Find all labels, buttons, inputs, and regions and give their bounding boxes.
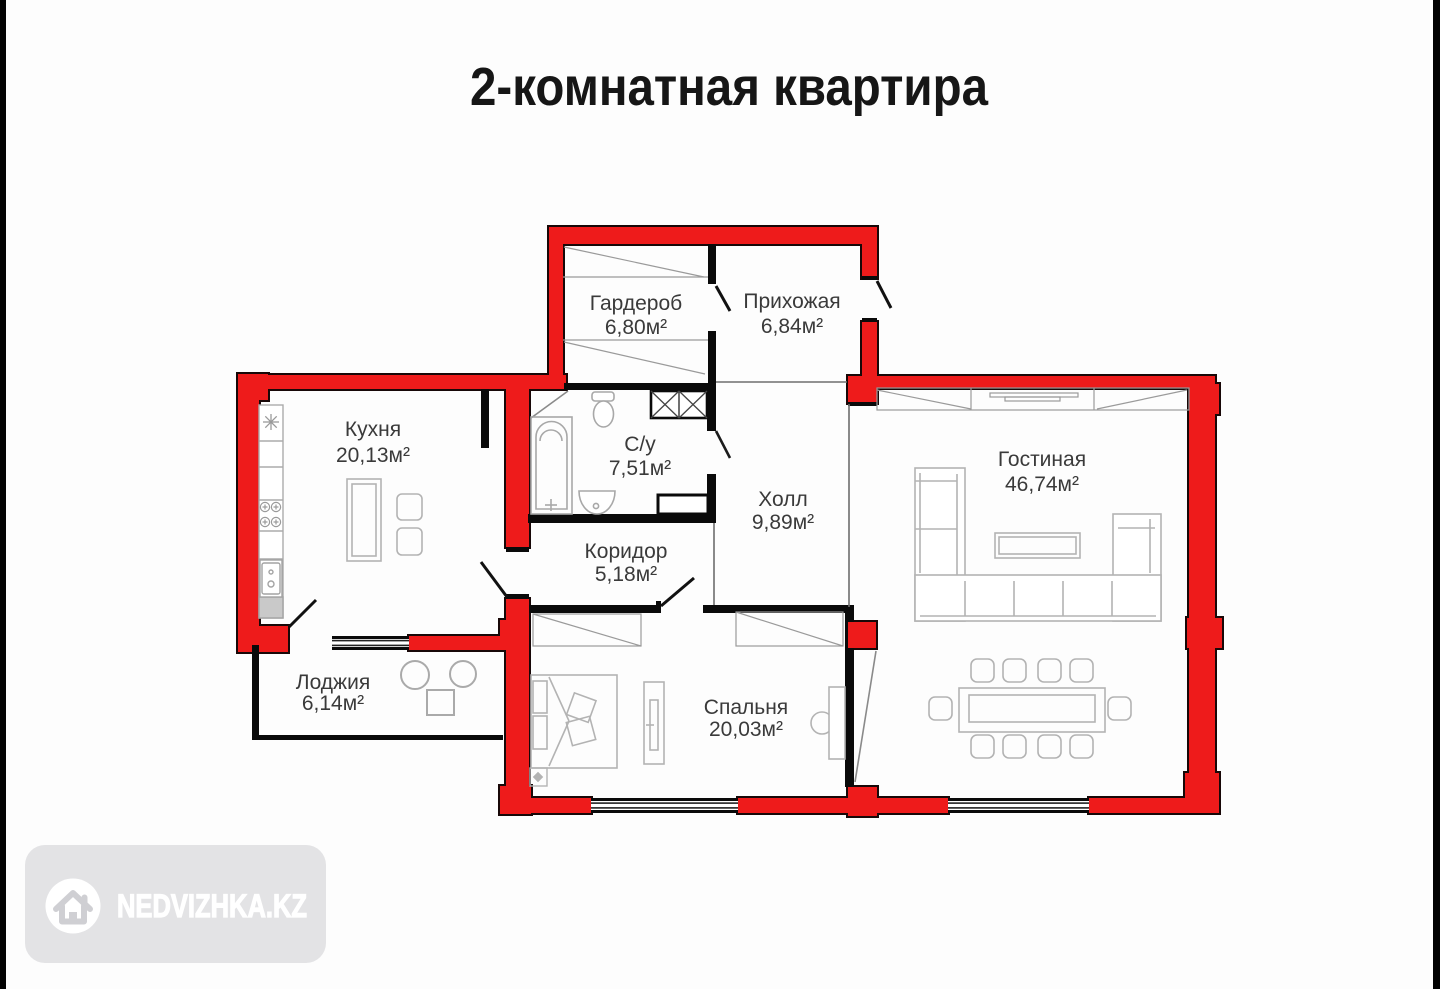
svg-text:Коридор: Коридор	[585, 540, 668, 563]
svg-text:6,84м²: 6,84м²	[761, 315, 823, 338]
svg-text:Холл: Холл	[758, 488, 808, 511]
svg-text:20,13м²: 20,13м²	[336, 444, 410, 467]
svg-text:Кухня: Кухня	[345, 418, 401, 441]
svg-text:6,14м²: 6,14м²	[302, 692, 364, 715]
svg-text:20,03м²: 20,03м²	[709, 718, 783, 741]
svg-text:NEDVIZHKA.KZ: NEDVIZHKA.KZ	[117, 888, 307, 924]
svg-text:46,74м²: 46,74м²	[1005, 473, 1079, 496]
svg-text:2-комнатная квартира: 2-комнатная квартира	[470, 57, 989, 117]
svg-text:Гостиная: Гостиная	[998, 448, 1086, 471]
svg-text:7,51м²: 7,51м²	[609, 457, 671, 480]
svg-text:5,18м²: 5,18м²	[595, 563, 657, 586]
svg-text:Спальня: Спальня	[704, 696, 788, 719]
svg-text:Лоджия: Лоджия	[296, 671, 370, 694]
svg-text:Прихожая: Прихожая	[743, 290, 840, 313]
svg-text:6,80м²: 6,80м²	[605, 316, 667, 339]
svg-text:С/у: С/у	[624, 433, 656, 456]
svg-text:Гардероб: Гардероб	[590, 292, 682, 315]
svg-text:9,89м²: 9,89м²	[752, 511, 814, 534]
